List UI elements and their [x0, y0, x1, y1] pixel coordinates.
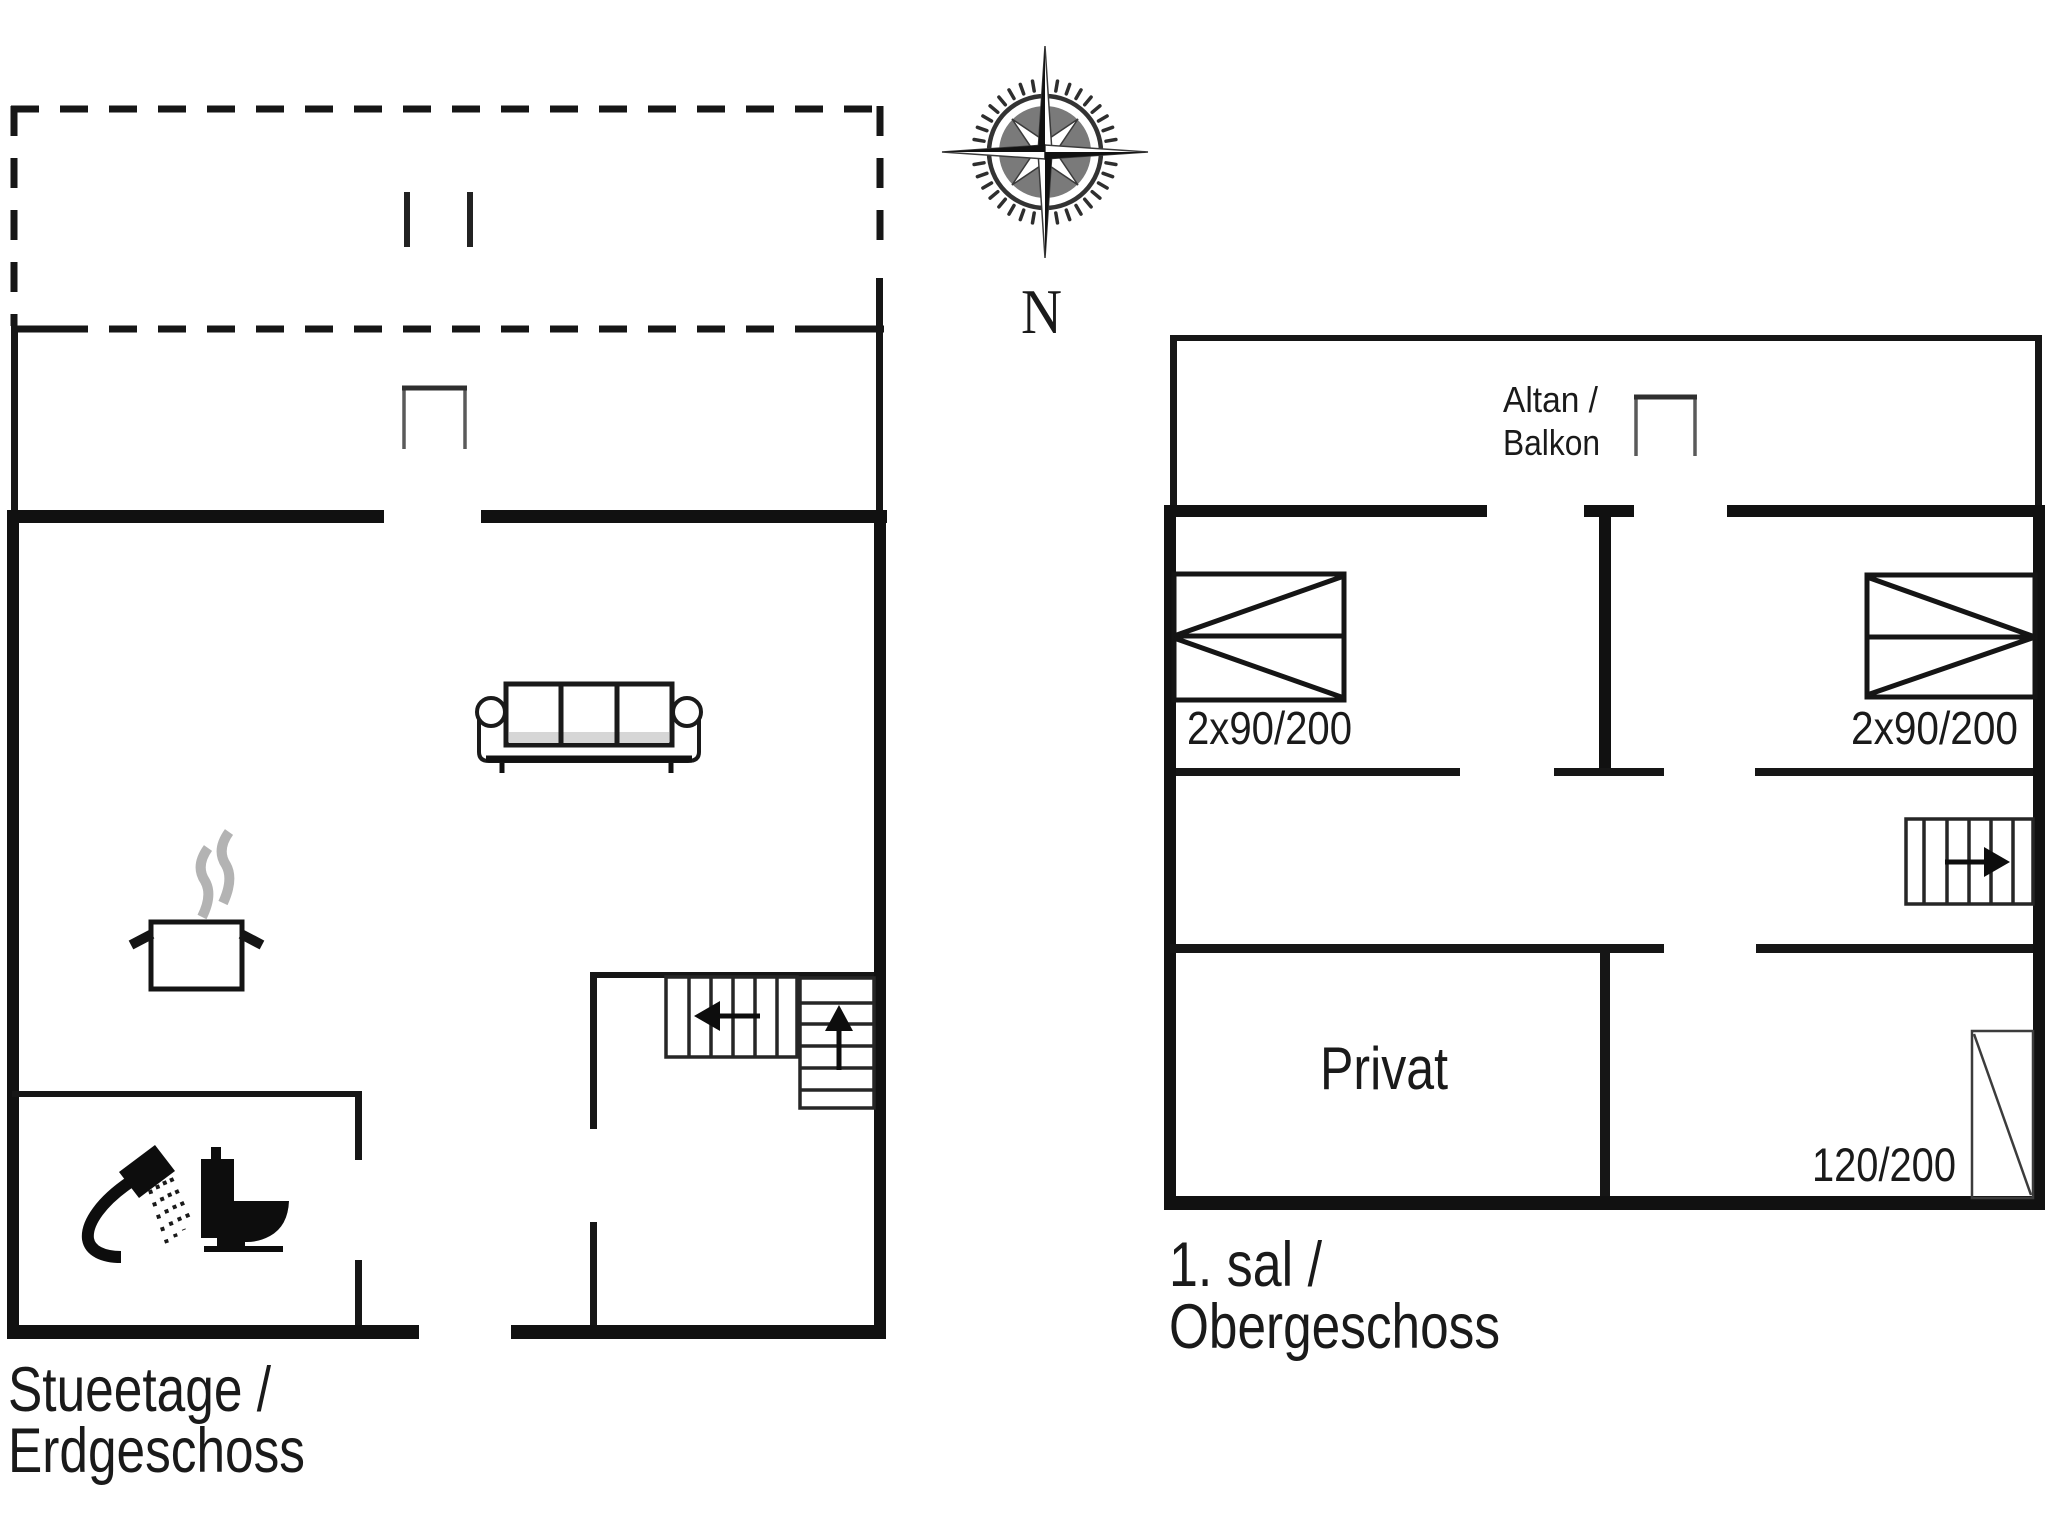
svg-text:Stueetage /: Stueetage /	[8, 1355, 271, 1425]
svg-text:Obergeschoss: Obergeschoss	[1169, 1292, 1500, 1362]
svg-text:120/200: 120/200	[1812, 1138, 1956, 1191]
svg-text:2x90/200: 2x90/200	[1851, 702, 2018, 754]
svg-text:Privat: Privat	[1320, 1035, 1448, 1102]
svg-text:Balkon: Balkon	[1503, 422, 1600, 463]
svg-text:Altan /: Altan /	[1503, 379, 1598, 420]
svg-text:2x90/200: 2x90/200	[1187, 702, 1352, 754]
svg-text:Erdgeschoss: Erdgeschoss	[8, 1416, 305, 1486]
svg-text:N: N	[1021, 276, 1062, 347]
svg-text:1. sal /: 1. sal /	[1169, 1230, 1322, 1300]
